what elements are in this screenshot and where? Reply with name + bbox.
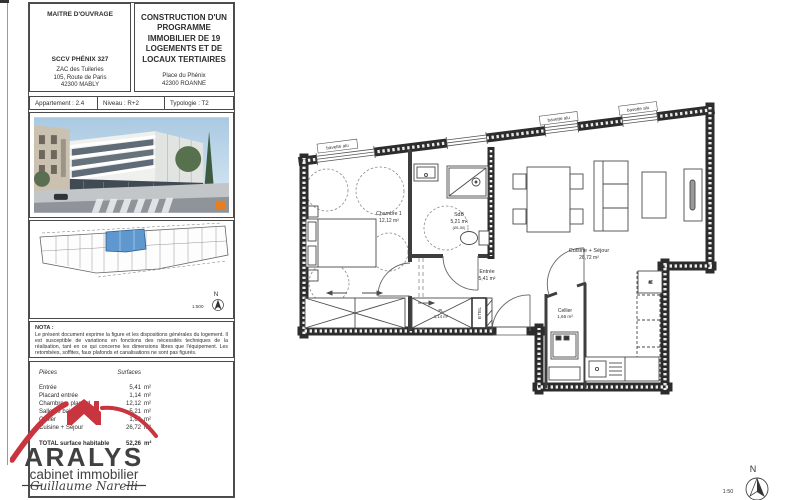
sdb-area: 5,21 m² (451, 219, 468, 225)
floor-plan: bavette alu bavette alu bavette alu (288, 92, 800, 500)
coffee-table (642, 172, 666, 218)
project-address: Place du Phénix 42300 ROANNE (162, 73, 206, 89)
furniture: R (305, 161, 702, 381)
building-photo (29, 112, 234, 218)
owner-address-line2: 105, Route de Paris (53, 75, 106, 83)
kitchen-counters: R (585, 271, 662, 381)
scan-corner-mark (0, 0, 9, 3)
header-pieces: Pièces (30, 370, 117, 376)
nota-title: NOTA : (35, 325, 228, 331)
washing-machine (551, 332, 578, 359)
level-cell: Niveau : R+2 (97, 96, 165, 110)
project-block: CONSTRUCTION D'UN PROGRAMME IMMOBILIER D… (134, 3, 234, 92)
toilet (461, 231, 490, 245)
entry-threshold (493, 327, 529, 335)
key-plan: N 1:500 (29, 220, 234, 319)
dining-table (513, 167, 583, 232)
windows: bavette alu bavette alu bavette alu (315, 102, 659, 166)
chambre-area: 12,12 m² (379, 218, 399, 224)
header-surfaces: Surfaces (117, 370, 141, 376)
page-edge-line (7, 0, 8, 465)
owner-address: ZAC des Tuileries 105, Route de Paris 42… (53, 67, 106, 90)
project-title: CONSTRUCTION D'UN PROGRAMME IMMOBILIER D… (135, 13, 233, 65)
project-address-line1: Place du Phénix (162, 73, 206, 81)
house-icon (67, 399, 101, 425)
photo-orange-logo (215, 201, 226, 210)
plan-compass-icon (746, 478, 768, 500)
key-plan-drawing: N 1:500 (30, 221, 233, 318)
shower (447, 166, 488, 198)
highlighted-unit (106, 229, 146, 252)
sofa (594, 161, 628, 231)
nota-body: Le présent document exprime la figure et… (35, 332, 228, 356)
window: bavette alu (539, 112, 579, 138)
chambre-label: Chambre 1 (376, 211, 402, 217)
sejour-area: 26,72 m² (579, 255, 599, 261)
washbasin (414, 164, 438, 181)
owner-company: SCCV PHÉNIX 327 (52, 56, 109, 63)
window: bavette alu (315, 137, 375, 165)
keyplan-compass-icon (213, 300, 224, 311)
sdb-label: SdB (454, 212, 464, 218)
chambre-closet (305, 291, 405, 328)
placard-area: 1,14 m² (434, 314, 449, 319)
logo-signature: Guillaume Narelli (30, 479, 138, 493)
apartment-cell: Appartement : 2.4 (29, 96, 98, 110)
etel-label: ETEL (477, 307, 483, 319)
owner-address-line1: ZAC des Tuileries (53, 67, 106, 75)
tv-unit (684, 169, 702, 221)
keyplan-north-label: N (214, 291, 219, 298)
entree-area: 5,41 m² (479, 276, 496, 282)
typology-cell: Typologie : T2 (164, 96, 234, 110)
plan-north-label: N (750, 464, 757, 474)
surface-table-header: Pièces Surfaces (30, 370, 233, 385)
bed (306, 206, 376, 281)
document-page: MAITRE D'OUVRAGE SCCV PHÉNIX 327 ZAC des… (0, 0, 800, 500)
entry-closet (412, 298, 472, 328)
owner-block: MAITRE D'OUVRAGE SCCV PHÉNIX 327 ZAC des… (29, 3, 131, 92)
owner-address-line3: 42300 MABLY (53, 82, 106, 90)
building-photo-image (34, 117, 229, 213)
sejour-label: Cuisine + Séjour (569, 248, 610, 254)
nota-block: NOTA : Le présent document exprime la fi… (29, 321, 234, 358)
aralys-logo: ARALYS cabinet immobilier Guillaume Nare… (10, 390, 174, 496)
sdb-note: (Ø1,50) (453, 226, 467, 230)
cellier-shelf (549, 367, 580, 380)
placard-label: PL (438, 308, 444, 313)
window (446, 132, 487, 149)
owner-title: MAITRE D'OUVRAGE (47, 11, 113, 18)
cellier-area: 1,66 m² (557, 314, 573, 319)
entree-label: Entrée (479, 269, 494, 275)
keyplan-scale-label: 1:500 (192, 304, 204, 309)
window: bavette alu (619, 102, 659, 128)
project-address-line2: 42300 ROANNE (162, 81, 206, 89)
plan-scale-label: 1:50 (723, 489, 734, 495)
